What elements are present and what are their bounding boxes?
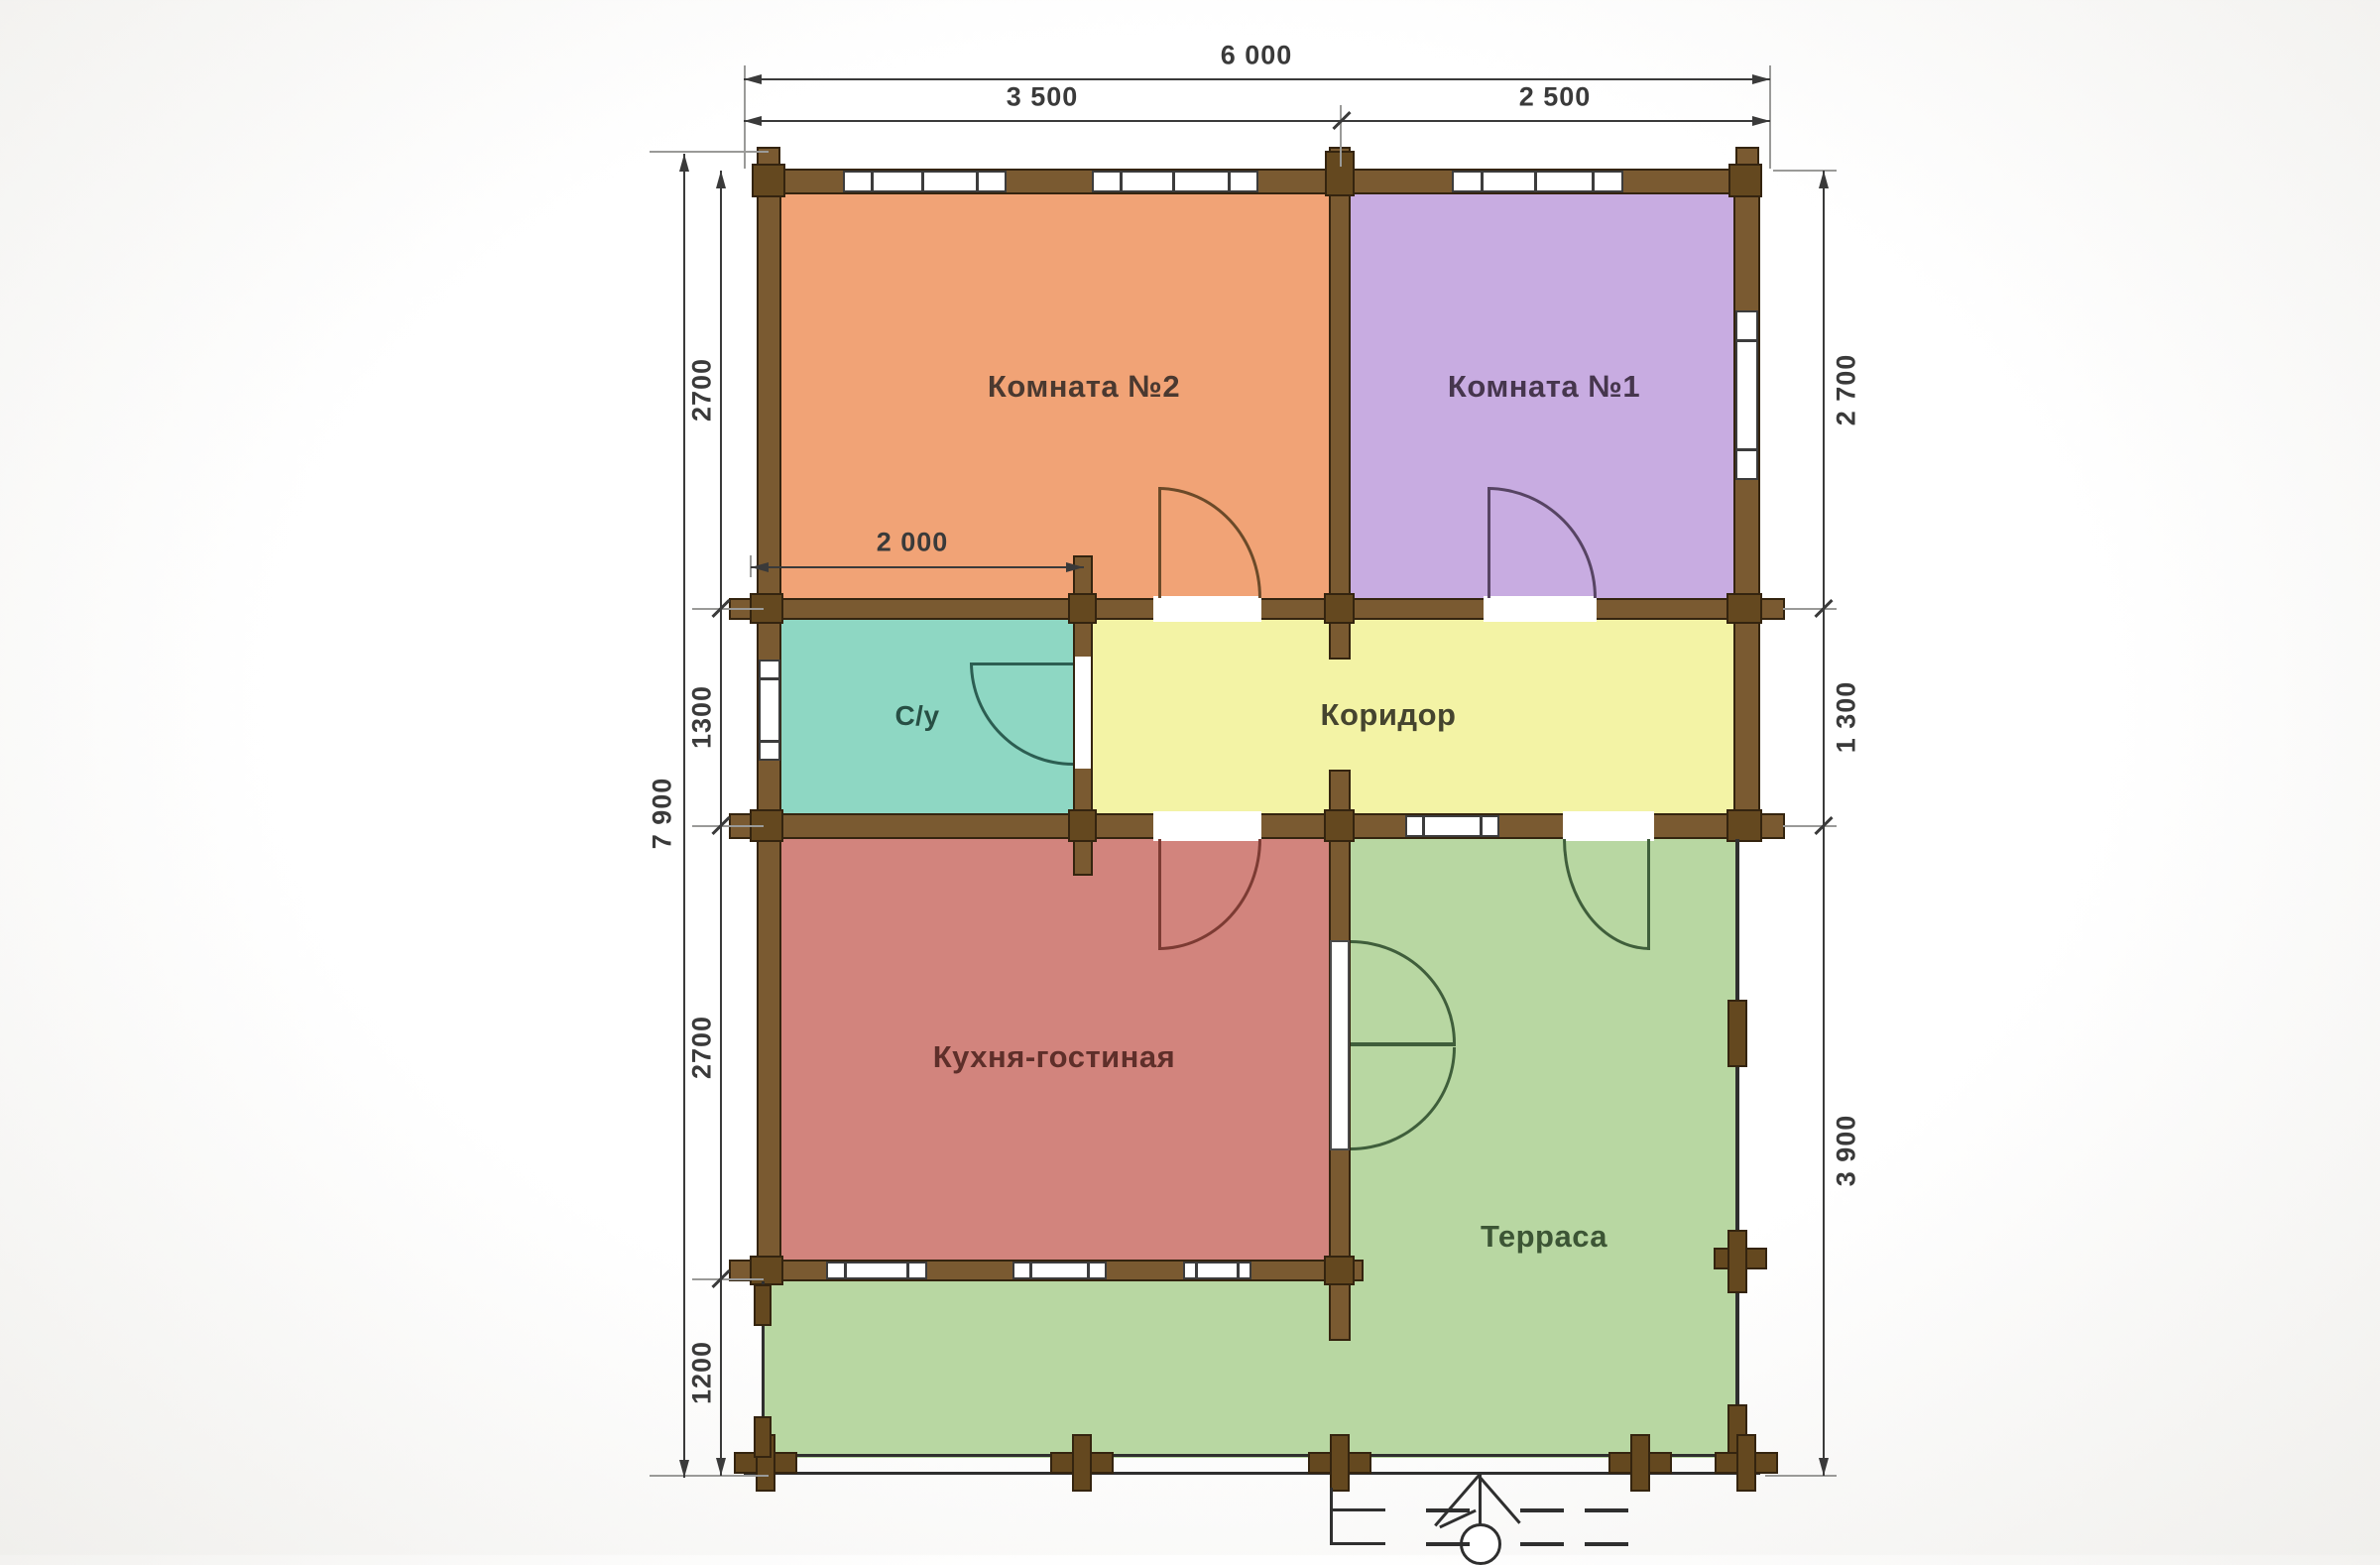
ext-line	[1783, 608, 1837, 610]
room-terrace-bottom	[764, 1281, 1351, 1458]
dim-line-top-total	[744, 78, 1770, 80]
dim-right-seg-1: 2 700	[1832, 354, 1862, 426]
window-kitchen-bottom-1	[826, 1262, 927, 1279]
window-room2-top-1	[843, 171, 1007, 192]
steps-dash	[1520, 1542, 1564, 1546]
window-room1-top	[1452, 171, 1623, 192]
entrance-arrow-right-diag	[1479, 1476, 1521, 1524]
dim-line-left-total	[683, 154, 685, 1478]
dim-left-seg-4: 1200	[687, 1341, 718, 1404]
dim-arrow	[1066, 562, 1084, 572]
window-kitchen-bottom-3	[1183, 1262, 1251, 1279]
dim-arrow	[1752, 116, 1770, 126]
dim-right-seg-2: 1 300	[1832, 681, 1862, 754]
ext-line	[1340, 105, 1342, 167]
railing-post-left-1	[754, 1284, 772, 1326]
post-kt-1270	[1324, 1256, 1355, 1285]
dim-arrow	[716, 1458, 726, 1476]
ext-line	[692, 1278, 764, 1280]
steps-dash	[1585, 1542, 1628, 1546]
opening-kitchen-door	[1153, 811, 1261, 841]
steps-bracket-h1	[1330, 1508, 1385, 1511]
dim-line-su	[751, 566, 1084, 568]
post-top-left-corner	[752, 164, 785, 197]
window-room1-right	[1735, 310, 1758, 480]
post-su-820	[1068, 809, 1097, 842]
opening-terrace-door	[1563, 811, 1654, 841]
opening-su-door	[1075, 657, 1091, 769]
window-mullion	[1172, 172, 1175, 191]
window-corridor-bottom	[1405, 815, 1499, 837]
ext-line	[692, 825, 764, 827]
dim-arrow	[744, 116, 762, 126]
steps-dash	[1520, 1508, 1564, 1512]
wall-stub-kitchen-below	[1329, 1279, 1351, 1341]
dim-su-width: 2 000	[877, 528, 949, 558]
dim-top-right: 2 500	[1519, 82, 1592, 113]
opening-room1-door	[1484, 596, 1597, 622]
dim-arrow	[751, 562, 769, 572]
label-room2: Комната №2	[988, 369, 1180, 405]
railing-post-right-2	[1727, 1230, 1747, 1293]
railing-post-b4	[1630, 1434, 1650, 1492]
post-kt-820	[1324, 809, 1355, 842]
steps-dash	[1426, 1542, 1470, 1546]
wall-right	[1733, 169, 1760, 839]
dim-line-top-left	[744, 120, 1341, 122]
railing-post-b2	[1072, 1434, 1092, 1492]
post-left-1270	[750, 1256, 783, 1285]
railing-post-left-2	[754, 1416, 772, 1458]
ext-line	[650, 151, 769, 153]
dim-left-seg-1: 2700	[687, 358, 718, 421]
entrance-arrow-stem	[1479, 1474, 1482, 1529]
label-room1: Комната №1	[1448, 369, 1640, 405]
ext-line	[692, 608, 764, 610]
dim-right-seg-3: 3 900	[1832, 1115, 1862, 1187]
railing-post-b5	[1736, 1434, 1756, 1492]
steps-bracket-vert	[1330, 1488, 1333, 1545]
window-mullion	[1534, 172, 1537, 191]
wall-partition-rooms	[1329, 147, 1351, 660]
window-room2-top-2	[1092, 171, 1258, 192]
room-terrace-right	[1351, 839, 1737, 1458]
opening-kitchen-terrace-double-door	[1330, 940, 1350, 1150]
label-su: С/у	[894, 700, 939, 732]
ext-line	[650, 1475, 769, 1477]
railing-post-right-1	[1727, 1000, 1747, 1067]
label-terrace: Терраса	[1481, 1219, 1607, 1255]
post-su-603	[1068, 593, 1097, 624]
dim-arrow	[1819, 1458, 1829, 1476]
floor-plan: 6 000 3 500 2 500 2 000 7 900 2700 1300 …	[0, 0, 2380, 1555]
dim-arrow	[1752, 74, 1770, 84]
dim-left-seg-3: 2700	[687, 1016, 718, 1079]
dim-arrow	[679, 154, 689, 172]
steps-bracket-h2	[1330, 1542, 1385, 1545]
window-mullion	[921, 172, 924, 191]
label-corridor: Коридор	[1321, 697, 1457, 733]
dim-arrow	[679, 1460, 689, 1478]
post-rooms-603	[1324, 593, 1355, 624]
ext-line	[1783, 825, 1837, 827]
post-right-603	[1726, 593, 1762, 624]
dim-top-total: 6 000	[1221, 41, 1293, 71]
railing-right	[1735, 839, 1739, 1458]
steps-dash	[1426, 1508, 1470, 1512]
dim-top-left: 3 500	[1007, 82, 1079, 113]
label-kitchen: Кухня-гостиная	[933, 1039, 1175, 1075]
door-leaf-double	[1351, 1042, 1456, 1046]
dim-left-total: 7 900	[648, 778, 678, 850]
post-right-820	[1726, 809, 1762, 842]
dim-arrow	[716, 171, 726, 188]
dim-line-top-right	[1341, 120, 1770, 122]
window-su-left	[759, 660, 780, 761]
railing-post-b3	[1330, 1434, 1350, 1492]
dim-arrow	[744, 74, 762, 84]
dim-arrow	[1819, 171, 1829, 188]
opening-room2-door	[1153, 596, 1261, 622]
dim-left-seg-2: 1300	[687, 685, 718, 749]
steps-dash	[1585, 1508, 1628, 1512]
post-top-right-corner	[1728, 164, 1762, 197]
window-kitchen-bottom-2	[1012, 1262, 1107, 1279]
